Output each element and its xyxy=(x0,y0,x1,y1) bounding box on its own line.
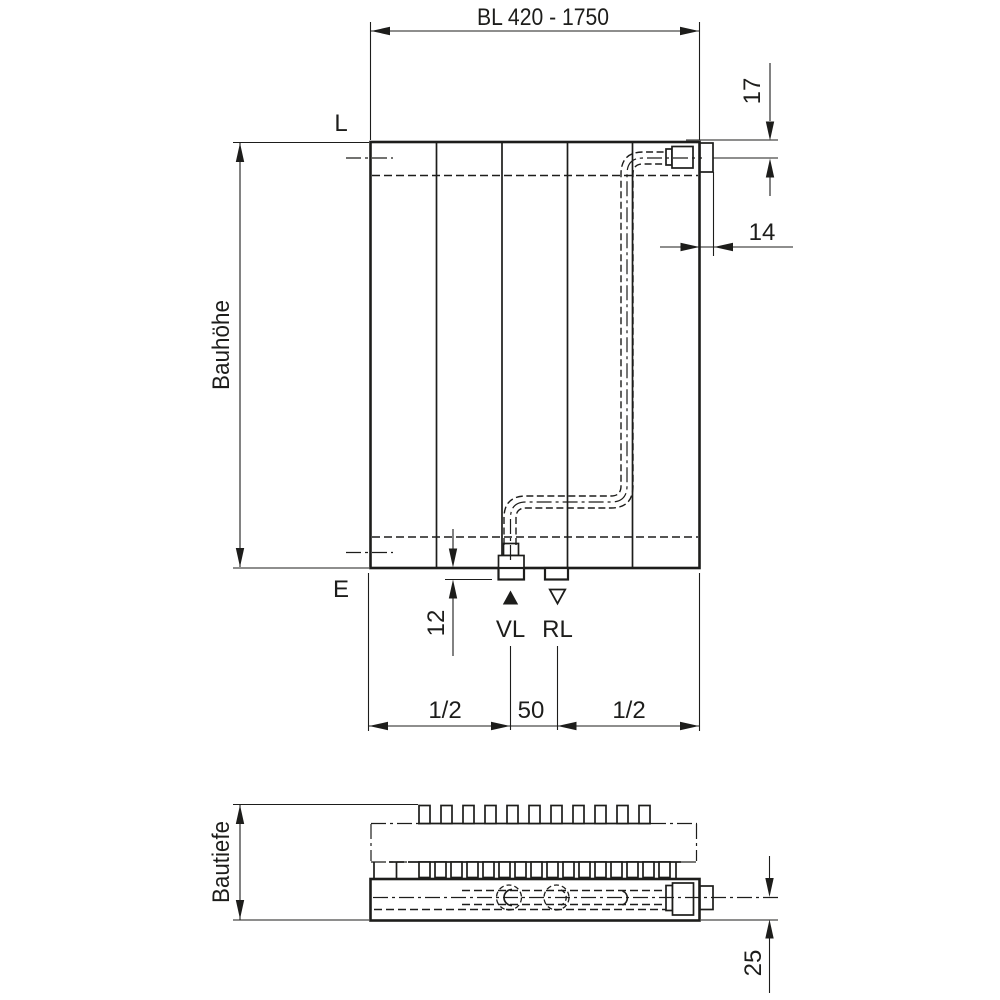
fin-tooth xyxy=(595,806,606,824)
fin-tooth xyxy=(463,806,474,824)
dim-arrow xyxy=(371,27,390,35)
side-offset-label: 14 xyxy=(749,219,776,246)
dim-arrow xyxy=(714,243,733,251)
fin-tooth xyxy=(419,806,430,824)
dim-arrow xyxy=(765,878,773,897)
fitting-body-plan xyxy=(673,883,694,915)
half-left-label: 1/2 xyxy=(428,697,461,724)
bottom-line-label: E xyxy=(333,576,349,603)
center-spacing-label: 50 xyxy=(518,697,545,724)
fitting-collar xyxy=(666,149,672,165)
top-offset-label: 17 xyxy=(739,78,766,105)
fin-tooth xyxy=(563,862,574,878)
depth-dim-label: Bautiefe xyxy=(208,821,235,903)
fin-tooth xyxy=(611,862,622,878)
return-label: RL xyxy=(542,616,573,643)
length-dim-label: BL 420 - 1750 xyxy=(477,4,609,31)
fin-tooth xyxy=(579,862,590,878)
front-view xyxy=(346,142,713,580)
supply-stub xyxy=(499,568,525,580)
supply-flow-triangle xyxy=(503,591,518,605)
radiator-technical-drawing: BL 420 - 1750 Bauhöhe L E 17 14 12 xyxy=(0,0,1000,1000)
bottom-spacing-dimensions: 1/2 50 1/2 xyxy=(369,573,700,731)
dim-arrow xyxy=(766,159,774,178)
fin-tooth xyxy=(529,806,540,824)
dim-arrow xyxy=(680,27,699,35)
radiator-body-outline xyxy=(371,142,700,568)
fin-tooth xyxy=(483,862,494,878)
dim-arrow xyxy=(558,722,577,730)
dim-arrow xyxy=(449,580,457,599)
supply-valve-body xyxy=(499,556,525,569)
rear-offset-label: 25 xyxy=(740,950,767,977)
dim-arrow xyxy=(765,920,773,939)
fin-tooth xyxy=(643,862,654,878)
dim-arrow xyxy=(236,548,244,567)
fin-tooth xyxy=(485,806,496,824)
fin-tooth xyxy=(451,862,462,878)
dim-arrow xyxy=(766,122,774,141)
fin-tooth xyxy=(531,862,542,878)
dim-arrow xyxy=(491,722,510,730)
fin-tooth xyxy=(547,862,558,878)
dim-arrow xyxy=(369,722,388,730)
dim-arrow xyxy=(236,900,244,919)
fin-tooth xyxy=(617,806,628,824)
dim-arrow xyxy=(236,143,244,162)
fin-tooth xyxy=(627,862,638,878)
dim-25: 25 xyxy=(701,856,778,993)
return-flow-triangle xyxy=(550,590,565,604)
bauhoehe-dimension: Bauhöhe L E xyxy=(208,110,369,603)
bl-dimension: BL 420 - 1750 xyxy=(371,4,700,140)
top-line-label: L xyxy=(334,110,347,137)
fin-tooth xyxy=(419,862,430,878)
plan-view xyxy=(371,806,780,921)
fin-tooth xyxy=(467,862,478,878)
fin-tooth xyxy=(507,806,518,824)
fin-tooth xyxy=(499,862,510,878)
dim-arrow xyxy=(680,722,699,730)
fin-tooth xyxy=(551,806,562,824)
fin-tooth xyxy=(435,862,446,878)
fin-tooth xyxy=(515,862,526,878)
fin-tooth xyxy=(639,806,650,824)
dim-arrow xyxy=(236,805,244,824)
return-stub xyxy=(545,568,568,580)
half-right-label: 1/2 xyxy=(612,697,645,724)
drawing-svg: BL 420 - 1750 Bauhöhe L E 17 14 12 xyxy=(0,0,1000,1000)
fitting-body xyxy=(672,147,693,169)
fin-tooth xyxy=(573,806,584,824)
fin-tooth xyxy=(659,862,670,878)
supply-label: VL xyxy=(496,616,525,643)
fin-tooth xyxy=(441,806,452,824)
height-dim-label: Bauhöhe xyxy=(208,300,235,390)
panel-plan-outline xyxy=(371,879,700,921)
stub-protrusion-label: 12 xyxy=(423,610,450,637)
fin-tooth xyxy=(595,862,606,878)
